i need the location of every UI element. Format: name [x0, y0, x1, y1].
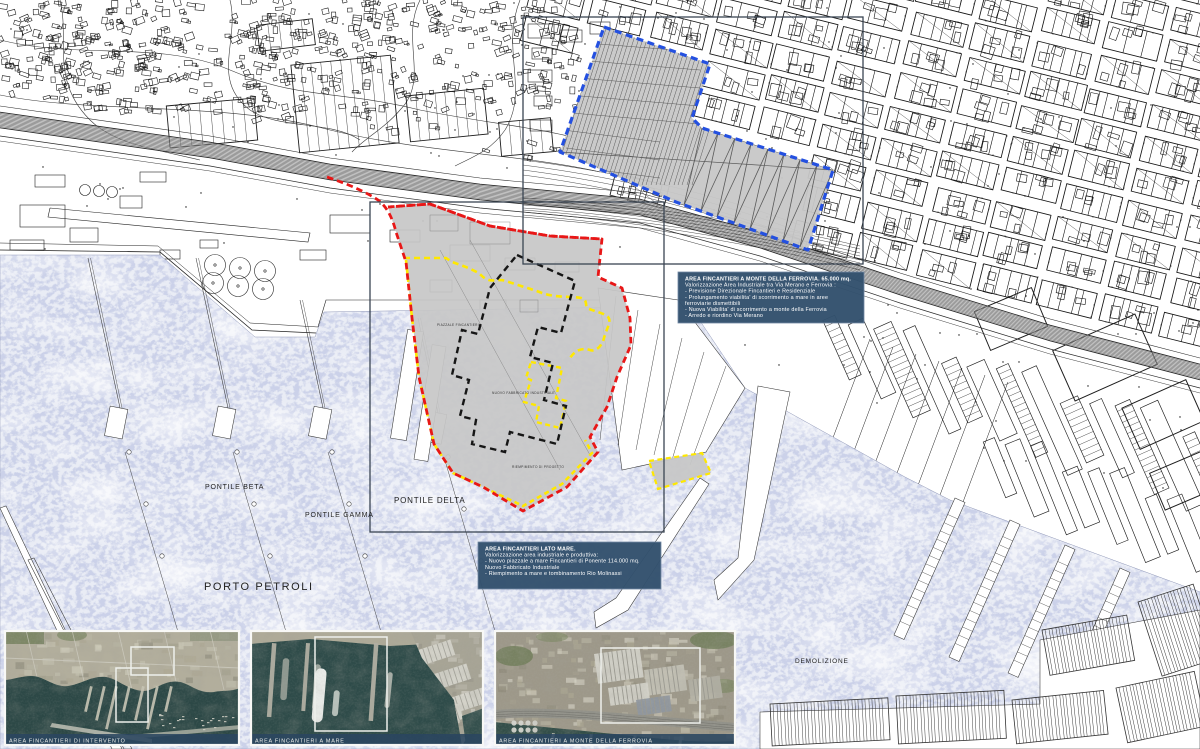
- svg-text:AREA FINCANTIERI A MARE: AREA FINCANTIERI A MARE: [255, 739, 345, 745]
- svg-text:Valorizzazione area industrial: Valorizzazione area industriale e produt…: [485, 553, 598, 559]
- svg-text:AREA FINCANTIERI A MONTE DELLA: AREA FINCANTIERI A MONTE DELLA FERROVIA: [499, 739, 653, 745]
- svg-text:- Nuovo piazzale a mare Fincan: - Nuovo piazzale a mare Fincantieri di P…: [485, 559, 640, 565]
- svg-text:- Prolungamento viabilita' di: - Prolungamento viabilita' di scorriment…: [685, 295, 828, 301]
- svg-text:DEMOLIZIONE: DEMOLIZIONE: [795, 658, 849, 665]
- svg-text:PONTILE DELTA: PONTILE DELTA: [394, 496, 465, 505]
- svg-text:ferroviarie dismettibili: ferroviarie dismettibili: [685, 301, 740, 307]
- svg-text:AREA FINCANTIERI A MONTE DELLA: AREA FINCANTIERI A MONTE DELLA FERROVIA.…: [685, 277, 851, 283]
- svg-text:- Previsione Direzionale Finca: - Previsione Direzionale Fincantieri e R…: [685, 289, 815, 295]
- svg-text:- Arredo e riordino Via Merano: - Arredo e riordino Via Merano: [685, 313, 763, 319]
- svg-text:PONTILE BETA: PONTILE BETA: [205, 484, 264, 491]
- svg-text:PIAZZALE FINCANTIERI: PIAZZALE FINCANTIERI: [437, 323, 479, 327]
- svg-text:PORTO PETROLI: PORTO PETROLI: [204, 581, 314, 593]
- svg-text:PONTILE GAMMA: PONTILE GAMMA: [305, 512, 374, 519]
- svg-text:RIEMPIMENTO DI PROGETTO: RIEMPIMENTO DI PROGETTO: [512, 465, 564, 469]
- svg-text:NUOVO FABBRICATO INDUSTRIALE: NUOVO FABBRICATO INDUSTRIALE: [492, 391, 555, 395]
- svg-text:AREA FINCANTIERI LATO MARE.: AREA FINCANTIERI LATO MARE.: [485, 547, 576, 553]
- svg-text:Valorizzazione Area Industrial: Valorizzazione Area Industriale tra Via …: [685, 283, 836, 289]
- svg-text:- Nuova Viabilita' di scorrime: - Nuova Viabilita' di scorrimento a mont…: [685, 307, 827, 313]
- svg-text:- Riempimento a mare e tombina: - Riempimento a mare e tombinamento Rio …: [485, 571, 622, 577]
- svg-text:Nuovo Fabbricato Industriale: Nuovo Fabbricato Industriale: [485, 565, 560, 571]
- svg-text:AREA FINCANTIERI DI INTERVENTO: AREA FINCANTIERI DI INTERVENTO: [9, 739, 126, 745]
